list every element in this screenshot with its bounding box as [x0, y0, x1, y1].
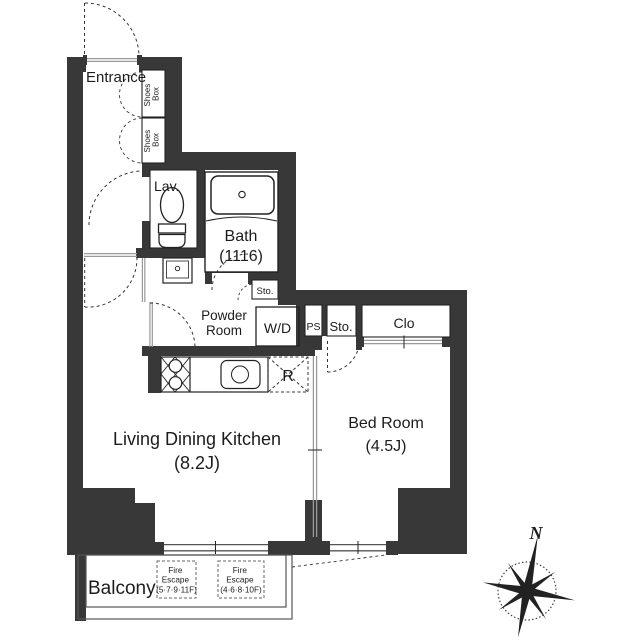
- walls: [67, 57, 467, 621]
- floor-plan: Entrance Shoes Box Shoes Box Lav. Bath (…: [0, 0, 640, 640]
- fire-escape-line: (5·7·9·11F): [156, 586, 197, 595]
- entrance-door-leaf: [87, 59, 137, 62]
- compass-icon: [474, 526, 586, 640]
- fire-escape-line: Fire: [168, 566, 183, 575]
- door-cap: [137, 55, 142, 65]
- fire-escape-line: Fire: [233, 566, 248, 575]
- door-swing-arc: [85, 3, 139, 57]
- sink-basin: [221, 361, 260, 389]
- shoes-box-line: Box: [152, 87, 161, 101]
- door-cap: [83, 55, 87, 65]
- wall-segment: [386, 541, 398, 555]
- fire-escape-line: Escape: [226, 576, 254, 585]
- wall-segment: [197, 170, 205, 258]
- toilet-base: [159, 235, 185, 248]
- wall-segment: [398, 488, 467, 554]
- compass-north-label: N: [529, 523, 544, 543]
- room-label-ldk: Living Dining Kitchen: [113, 429, 281, 449]
- room-label-lavatory: Lav.: [154, 178, 179, 194]
- wall-segment: [142, 165, 150, 177]
- bath-door-opening: [212, 273, 248, 284]
- room-size-bedroom: (4.5J): [366, 438, 407, 455]
- wall-segment: [442, 337, 451, 347]
- room-size-ldk: (8.2J): [174, 453, 220, 473]
- stove-icon: [161, 357, 190, 392]
- label-storage-hall: Sto.: [329, 319, 352, 334]
- wall-segment: [142, 346, 315, 356]
- vanity-drain: [175, 266, 179, 270]
- fire-escape-line: Escape: [162, 576, 190, 585]
- wall-segment: [268, 541, 330, 555]
- label-pipe-space: PS: [306, 321, 320, 333]
- wall-segment: [136, 248, 148, 258]
- hall-door-leaf: [84, 254, 137, 257]
- label-refrigerator: R: [282, 368, 294, 385]
- wall-segment: [450, 290, 467, 490]
- toilet-icon: [159, 188, 186, 248]
- door-swing-arc: [85, 258, 137, 307]
- sink-icon: [221, 361, 260, 389]
- wall-segment: [278, 290, 467, 305]
- wall-segment: [67, 57, 83, 488]
- burner-icon: [169, 360, 182, 373]
- burner-icon: [169, 377, 182, 390]
- vanity-sink-icon: [163, 258, 192, 283]
- wall-segment: [75, 553, 86, 621]
- wall-segment: [308, 336, 321, 350]
- powder-wall-line: [142, 258, 144, 302]
- bath-drain: [239, 191, 245, 197]
- fire-escape-label-1: Fire Escape (5·7·9·11F): [156, 566, 197, 595]
- lavatory-door-arc: [89, 171, 143, 225]
- wall-segment: [322, 305, 327, 336]
- wall-segment: [67, 488, 135, 504]
- toilet-tank: [159, 224, 186, 233]
- wall-segment: [278, 152, 296, 292]
- closet-slider: [364, 340, 442, 343]
- wall-segment: [148, 346, 161, 393]
- powder-door-leaf: [150, 302, 152, 347]
- escape-route-line: [292, 555, 386, 567]
- label-washer-dryer: W/D: [264, 320, 291, 336]
- room-label-powder-2: Room: [206, 323, 242, 338]
- label-storage-bath: Sto.: [257, 286, 274, 297]
- shoes-box-line: Box: [152, 133, 161, 147]
- room-label-powder-1: Powder: [201, 308, 247, 323]
- bathtub-icon: [206, 176, 277, 221]
- wall-segment: [142, 248, 205, 258]
- room-label-entrance: Entrance: [86, 69, 146, 86]
- wall-segment: [165, 70, 182, 155]
- room-label-bedroom: Bed Room: [348, 415, 424, 432]
- wall-segment: [67, 503, 155, 542]
- bedroom-door-arc: [328, 340, 360, 372]
- fire-escape-line: (4·6·8·10F): [220, 586, 262, 595]
- room-label-closet: Clo: [393, 315, 414, 331]
- room-label-balcony: Balcony: [88, 578, 156, 599]
- fire-escape-label-2: Fire Escape (4·6·8·10F): [220, 566, 262, 595]
- room-label-bath: Bath: [225, 228, 258, 245]
- room-size-bath: (1116): [219, 248, 263, 265]
- powder-door-arc: [150, 303, 195, 348]
- floor-plan-canvas: Entrance Shoes Box Shoes Box Lav. Bath (…: [0, 0, 640, 640]
- sink-drain: [232, 366, 249, 383]
- bath-floor-line: [206, 217, 277, 221]
- bathtub: [211, 176, 274, 214]
